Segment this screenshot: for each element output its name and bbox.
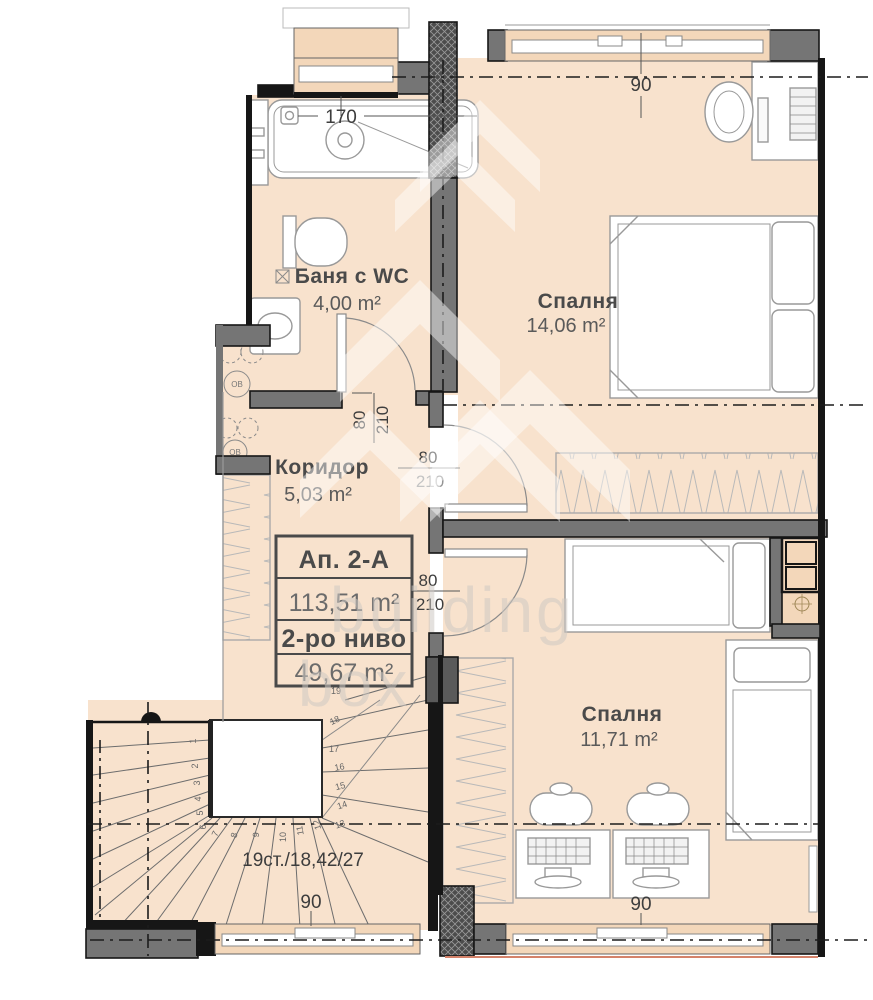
bedroom-top-name: Спалня <box>538 290 619 313</box>
chair-2 <box>627 793 689 825</box>
svg-text:1: 1 <box>188 738 198 743</box>
stairs-label: 19ст./18,42/27 <box>242 850 364 871</box>
svg-text:16: 16 <box>334 761 346 773</box>
watermark-line2: box <box>298 648 410 720</box>
svg-text:3: 3 <box>192 780 202 785</box>
dim-window-top: 90 <box>630 75 651 96</box>
radiator-right <box>809 846 817 912</box>
bathtub-mixer <box>281 107 298 124</box>
svg-text:2: 2 <box>190 763 200 768</box>
window-bathroom <box>294 28 398 58</box>
stair-landing <box>210 720 322 817</box>
keyboard-top <box>790 88 816 140</box>
dim-window-bottom: 90 <box>630 894 651 915</box>
door-bedroom-bottom-leaf <box>445 549 527 557</box>
wall-right <box>818 58 825 957</box>
bathroom-name: Баня с WC <box>295 265 410 288</box>
floor-plan-page: Баня с WC 4,00 m² Спалня 14,06 m² Коридо… <box>0 0 873 1000</box>
wardrobe-corridor <box>223 475 270 640</box>
pillow-top-2 <box>772 310 814 392</box>
bedroom-bottom-area: 11,71 m² <box>580 729 658 751</box>
svg-text:10: 10 <box>278 832 288 842</box>
watermark-line1: building <box>330 574 575 646</box>
svg-text:4: 4 <box>193 796 203 801</box>
svg-text:17: 17 <box>329 744 339 754</box>
svg-text:11: 11 <box>294 825 305 836</box>
dim-window-stairs: 90 <box>300 892 321 913</box>
pillow-bottom-2 <box>734 648 810 682</box>
bathroom-area: 4,00 m² <box>313 293 381 315</box>
stair-landing-edge <box>208 720 213 817</box>
pillow-bottom-1 <box>733 543 765 628</box>
wall-between-bedrooms <box>443 520 827 537</box>
dim-bath-window: 170 <box>325 107 357 128</box>
toilet-tank <box>283 216 296 268</box>
apartment-number: Ап. 2-А <box>299 546 390 574</box>
svg-text:9: 9 <box>251 832 261 838</box>
chair-1 <box>530 793 592 825</box>
floor-plan-svg: Баня с WC 4,00 m² Спалня 14,06 m² Коридо… <box>0 0 873 1000</box>
svg-text:6: 6 <box>198 824 208 829</box>
shaft-label-1: ОВ <box>231 380 243 389</box>
shaft-label-2: ОВ <box>229 448 241 457</box>
toilet-bowl <box>295 218 347 266</box>
svg-text:5: 5 <box>195 810 205 815</box>
pillow-top-1 <box>772 222 814 304</box>
bedroom-top-area: 14,06 m² <box>527 315 606 337</box>
keyboard-1 <box>528 838 590 864</box>
bedroom-bottom-name: Спалня <box>582 703 663 726</box>
door-bedroom-top-leaf <box>445 504 527 512</box>
keyboard-2 <box>626 838 688 864</box>
bath-vanity <box>250 100 268 185</box>
wall-insulated-bottom <box>440 886 474 956</box>
